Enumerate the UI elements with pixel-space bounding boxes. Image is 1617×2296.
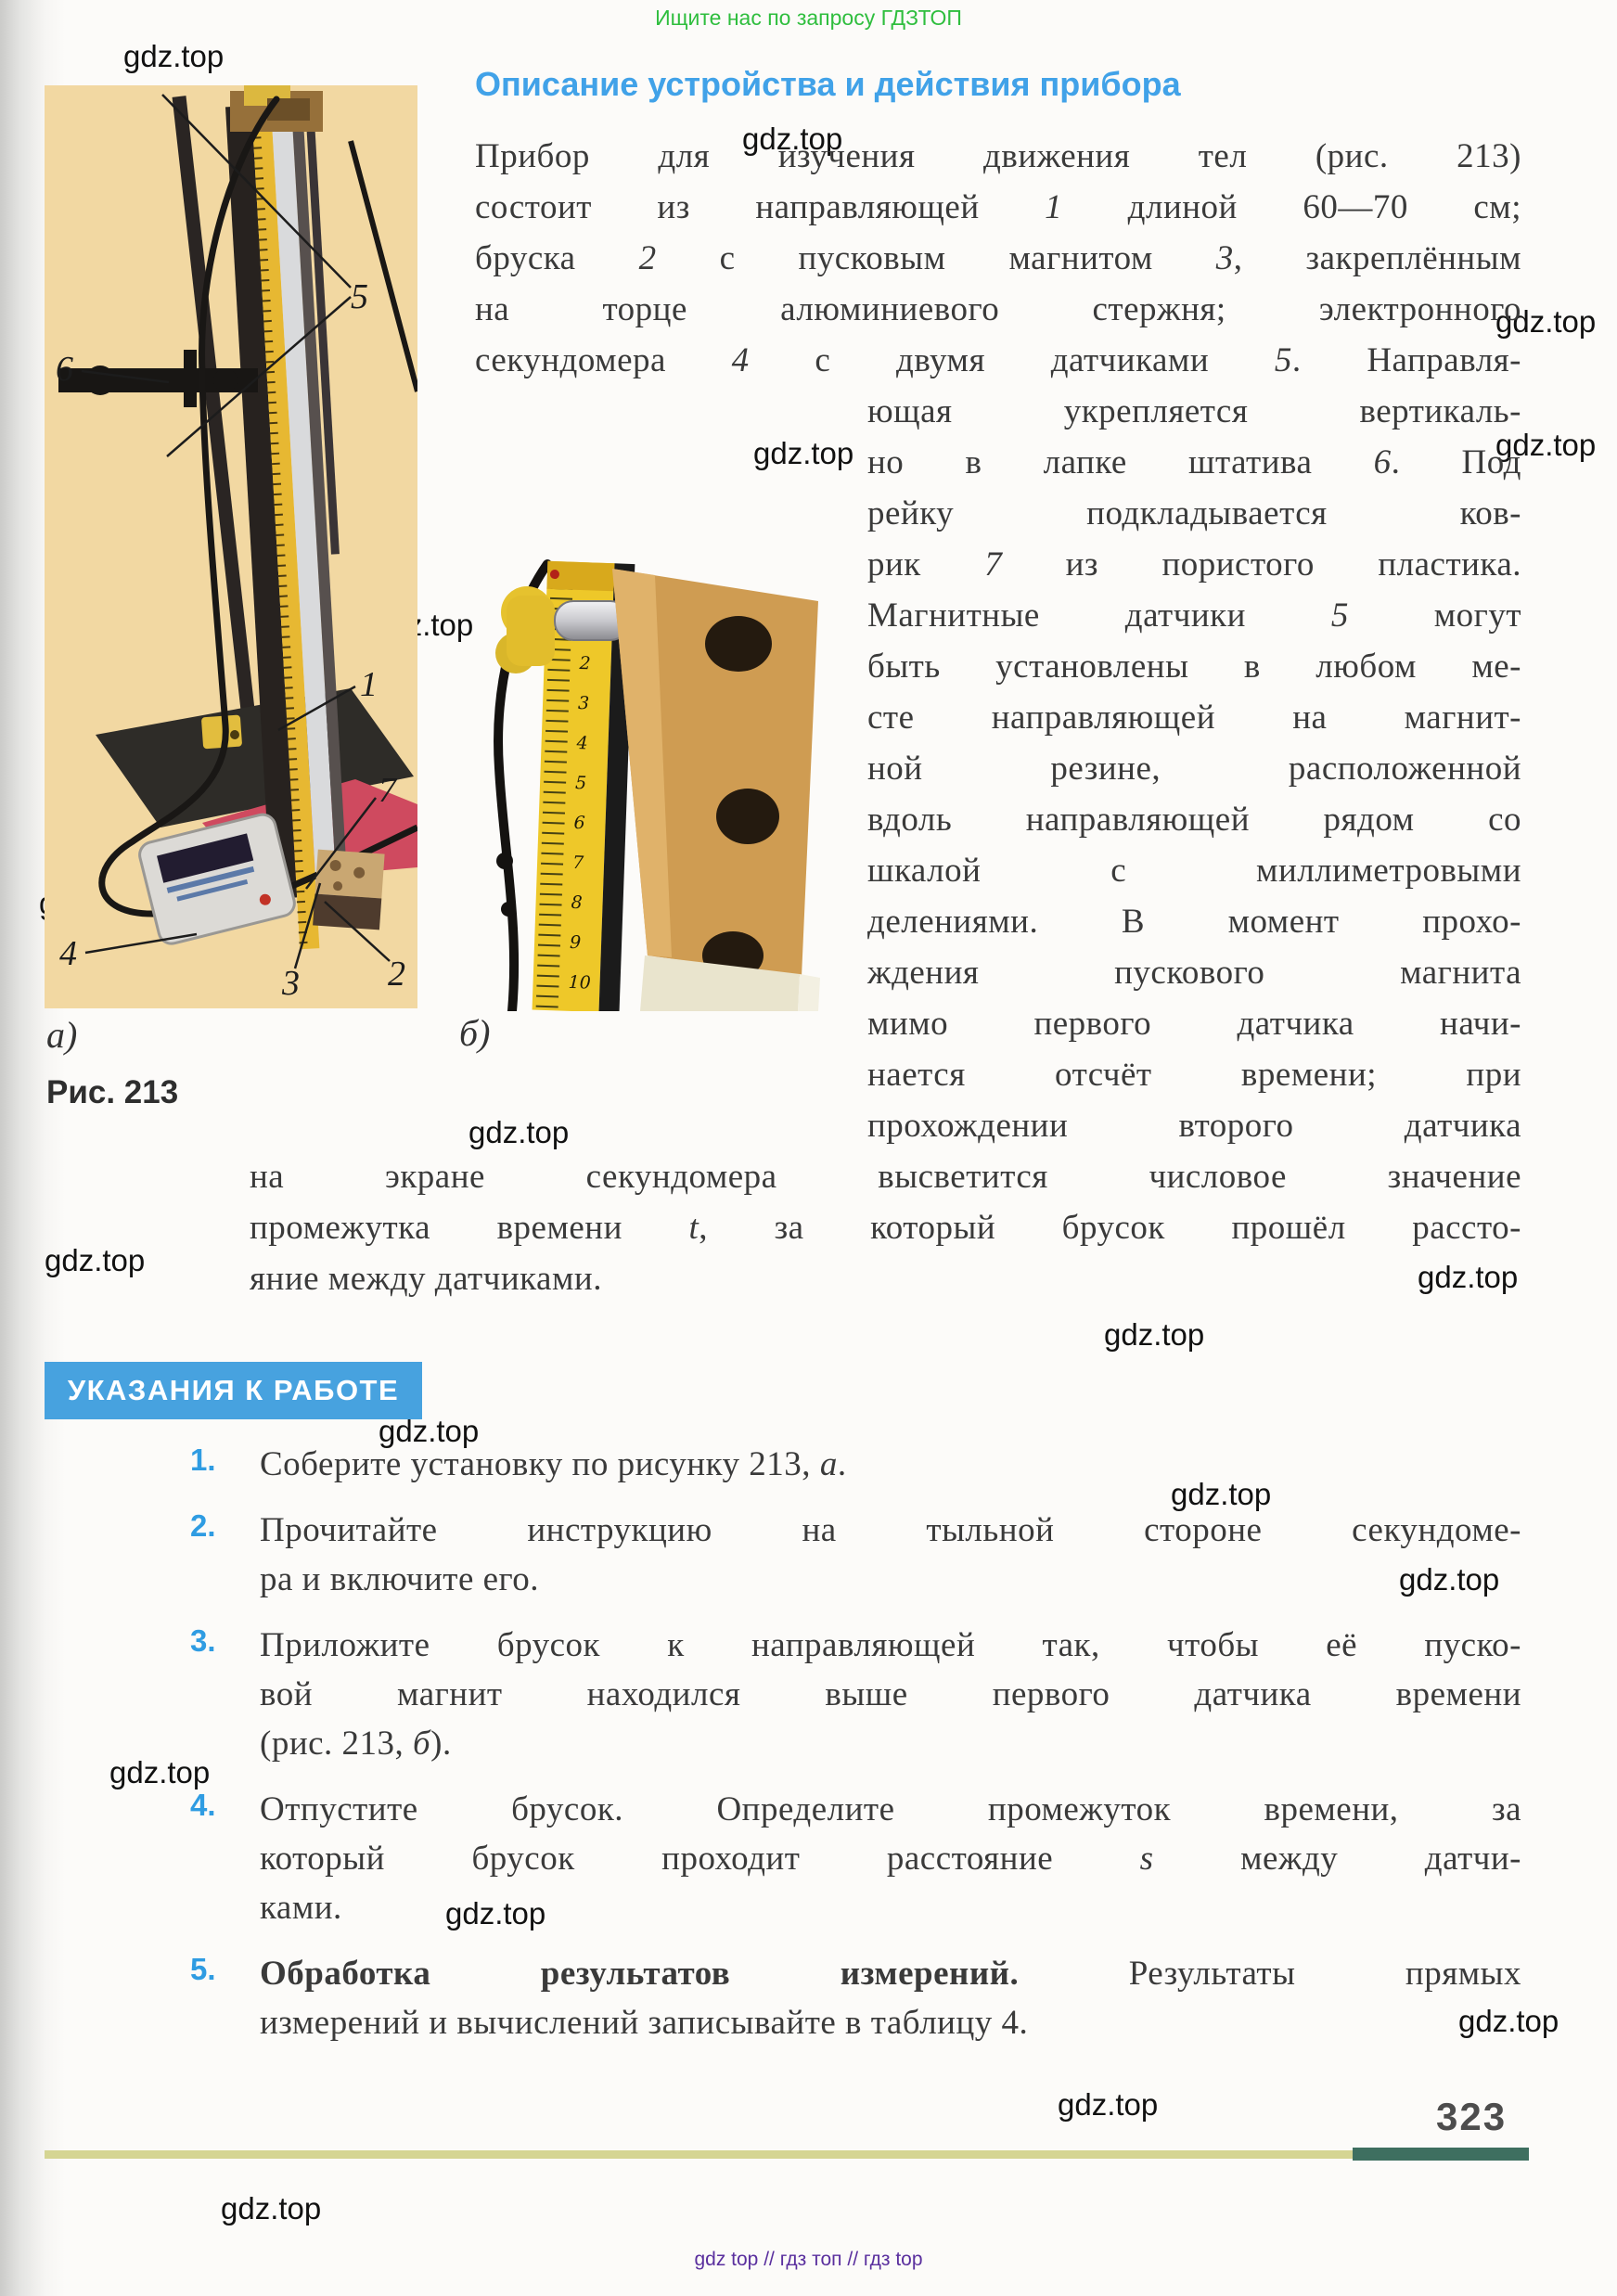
figure-label-4: 4 <box>59 934 77 973</box>
tape-number: 6 <box>573 813 585 833</box>
text-line: измерений и вычислений записывайте в таб… <box>260 1998 1521 2047</box>
figure-label-2: 2 <box>388 955 405 994</box>
figure-a-apparatus-photo: 5 6 1 7 4 3 2 <box>45 85 417 1008</box>
item-number: 5. <box>190 1952 248 1987</box>
tape-number: 10 <box>568 972 591 994</box>
watermark: gdz.top <box>45 1243 145 1278</box>
promo-top-text: Ищите нас по запросу ГДЗТОП <box>0 6 1617 31</box>
watermark: gdz.top <box>123 39 224 74</box>
cable-connector <box>496 853 513 869</box>
body-text-narrow: ющая укрепляется вертикаль- но в лапке ш… <box>867 386 1521 1151</box>
cable-connector <box>501 902 516 917</box>
tape-number: 3 <box>578 693 590 713</box>
text-line: мимо первого датчика начи- <box>867 998 1521 1049</box>
figure-label-3: 3 <box>281 964 300 1003</box>
block-magnet <box>313 893 381 930</box>
text-line: Обработка результатов измерений. Результ… <box>260 1949 1521 1998</box>
text-line: Отпустите брусок. Определите промежуток … <box>260 1785 1521 1834</box>
text-line: рик 7 из пористого пластика. <box>867 539 1521 590</box>
promo-bottom-text: gdz top // гдз топ // гдз top <box>0 2249 1617 2271</box>
text-line: прохождении второго датчика <box>867 1100 1521 1151</box>
text-line: Соберите установку по рисунку 213, а. <box>260 1440 1521 1489</box>
figure-caption: Рис. 213 <box>46 1074 178 1111</box>
text-line: шкалой с миллиметровыми <box>867 845 1521 896</box>
text-line: промежутка времени t, за который брусок … <box>250 1202 1521 1253</box>
text-line: нается отсчёт времени; при <box>867 1049 1521 1100</box>
page-number: 323 <box>1436 2095 1507 2139</box>
tape-number: 8 <box>571 892 583 913</box>
text-line: сте направляющей на магнит- <box>867 692 1521 743</box>
text-line: ками. <box>260 1883 1521 1932</box>
text-line: состоит из направляющей 1 длиной 60—70 с… <box>475 182 1521 233</box>
text-line: Приложите брусок к направляющей так, что… <box>260 1621 1521 1670</box>
work-item-1: 1. Соберите установку по рисунку 213, а. <box>0 1440 1617 1489</box>
figure-label-1: 1 <box>360 665 378 704</box>
sensor-clamp-body <box>507 596 555 666</box>
text-line: бруска 2 с пусковым магнитом 3, закреплё… <box>475 233 1521 284</box>
figure-b-closeup-photo: 12345678910 <box>473 555 844 1011</box>
text-line: вой магнит находился выше первого датчик… <box>260 1670 1521 1719</box>
bottom-rule-teal <box>1353 2148 1529 2161</box>
watermark: gdz.top <box>221 2191 321 2226</box>
text-line: делениями. В момент прохо- <box>867 896 1521 947</box>
text-line: быть установлены в любом ме- <box>867 641 1521 692</box>
clamp-knob <box>85 366 115 395</box>
item-number: 4. <box>190 1788 248 1823</box>
tape-number: 4 <box>575 733 588 753</box>
work-item-5: 5. Обработка результатов измерений. Резу… <box>0 1949 1617 2047</box>
wooden-block <box>313 850 385 930</box>
body-text-top: Прибор для изучения движения тел (рис. 2… <box>475 131 1521 386</box>
clamp-bolt <box>184 350 197 407</box>
text-line: ждения пускового магнита <box>867 947 1521 998</box>
watermark: gdz.top <box>468 1115 569 1150</box>
text-line: (рис. 213, б). <box>260 1719 1521 1768</box>
body-text-tail: на экране секундомера высветится числово… <box>250 1151 1521 1304</box>
section-heading: Описание устройства и действия прибора <box>475 65 1533 104</box>
work-item-3: 3. Приложите брусок к направляющей так, … <box>0 1621 1617 1768</box>
text-line: но в лапке штатива 6. Под <box>867 437 1521 488</box>
block-wood <box>314 850 384 899</box>
item-number: 1. <box>190 1443 248 1478</box>
caption-a: а) <box>46 1013 77 1057</box>
rail-edge-highlight <box>798 974 820 1011</box>
tape-number: 5 <box>575 773 587 793</box>
watermark: gdz.top <box>1104 1317 1204 1353</box>
text-line: на торце алюминиевого стержня; электронн… <box>475 284 1521 335</box>
watermark: gdz.top <box>1058 2087 1158 2123</box>
tape-number: 9 <box>570 932 582 953</box>
text-line: ющая укрепляется вертикаль- <box>867 386 1521 437</box>
block-hole <box>716 789 779 844</box>
figure-label-7: 7 <box>379 771 398 810</box>
caption-b: б) <box>459 1011 490 1055</box>
text-line: Прибор для изучения движения тел (рис. 2… <box>475 131 1521 182</box>
work-instructions-banner: УКАЗАНИЯ К РАБОТЕ <box>45 1362 422 1419</box>
figure-label-6: 6 <box>56 350 73 389</box>
text-line: ной резине, расположенной <box>867 743 1521 794</box>
text-line: секундомера 4 с двумя датчиками 5. Напра… <box>475 335 1521 386</box>
text-line: Прочитайте инструкцию на тыльной стороне… <box>260 1506 1521 1555</box>
clamp-knob <box>213 368 237 392</box>
bottom-rule-olive <box>45 2150 1353 2159</box>
text-line: вдоль направляющей рядом со <box>867 794 1521 845</box>
text-line: рейку подкладывается ков- <box>867 488 1521 539</box>
item-number: 2. <box>190 1508 248 1544</box>
watermark: gdz.top <box>753 436 853 471</box>
figure-label-5: 5 <box>351 277 368 316</box>
lower-sensor-screw <box>230 730 239 739</box>
text-line: на экране секундомера высветится числово… <box>250 1151 1521 1202</box>
block-hole <box>705 616 772 672</box>
work-item-2: 2. Прочитайте инструкцию на тыльной стор… <box>0 1506 1617 1604</box>
text-line: Магнитные датчики 5 могут <box>867 590 1521 641</box>
text-line: яние между датчиками. <box>250 1253 1521 1304</box>
tape-number: 2 <box>578 653 591 673</box>
work-item-4: 4. Отпустите брусок. Определите промежут… <box>0 1785 1617 1932</box>
item-number: 3. <box>190 1623 248 1659</box>
book-page: Ищите нас по запросу ГДЗТОП gdz.top gdz.… <box>0 0 1617 2296</box>
text-line: который брусок проходит расстояние s меж… <box>260 1834 1521 1883</box>
tape-number: 7 <box>572 853 585 873</box>
text-line: ра и включите его. <box>260 1555 1521 1604</box>
